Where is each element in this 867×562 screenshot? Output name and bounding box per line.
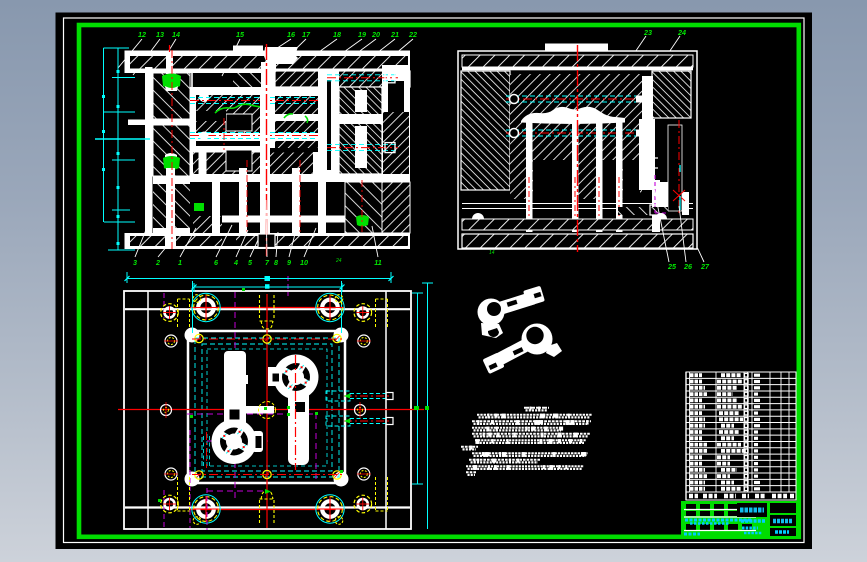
svg-text:3: 3 — [133, 258, 137, 267]
svg-text:18: 18 — [333, 30, 341, 39]
svg-text:8: 8 — [274, 258, 278, 267]
svg-text:21: 21 — [390, 30, 399, 39]
svg-text:14: 14 — [172, 30, 180, 39]
svg-text:27: 27 — [700, 262, 710, 271]
svg-text:24: 24 — [335, 258, 342, 264]
svg-text:25: 25 — [667, 262, 677, 271]
svg-text:11: 11 — [374, 258, 381, 267]
svg-text:4: 4 — [233, 258, 238, 267]
svg-text:17: 17 — [302, 30, 311, 39]
svg-text:19: 19 — [358, 30, 366, 39]
svg-text:15: 15 — [236, 30, 245, 39]
svg-text:14: 14 — [489, 250, 495, 256]
svg-text:10: 10 — [300, 258, 308, 267]
svg-text:22: 22 — [408, 30, 417, 39]
svg-text:9: 9 — [287, 258, 291, 267]
svg-text:26: 26 — [683, 262, 693, 271]
svg-text:24: 24 — [677, 28, 686, 37]
svg-text:1: 1 — [178, 258, 182, 267]
svg-text:13: 13 — [156, 30, 164, 39]
svg-text:2: 2 — [155, 258, 160, 267]
svg-text:23: 23 — [643, 28, 652, 37]
svg-text:16: 16 — [287, 30, 296, 39]
svg-text:12: 12 — [138, 30, 146, 39]
svg-text:20: 20 — [371, 30, 380, 39]
